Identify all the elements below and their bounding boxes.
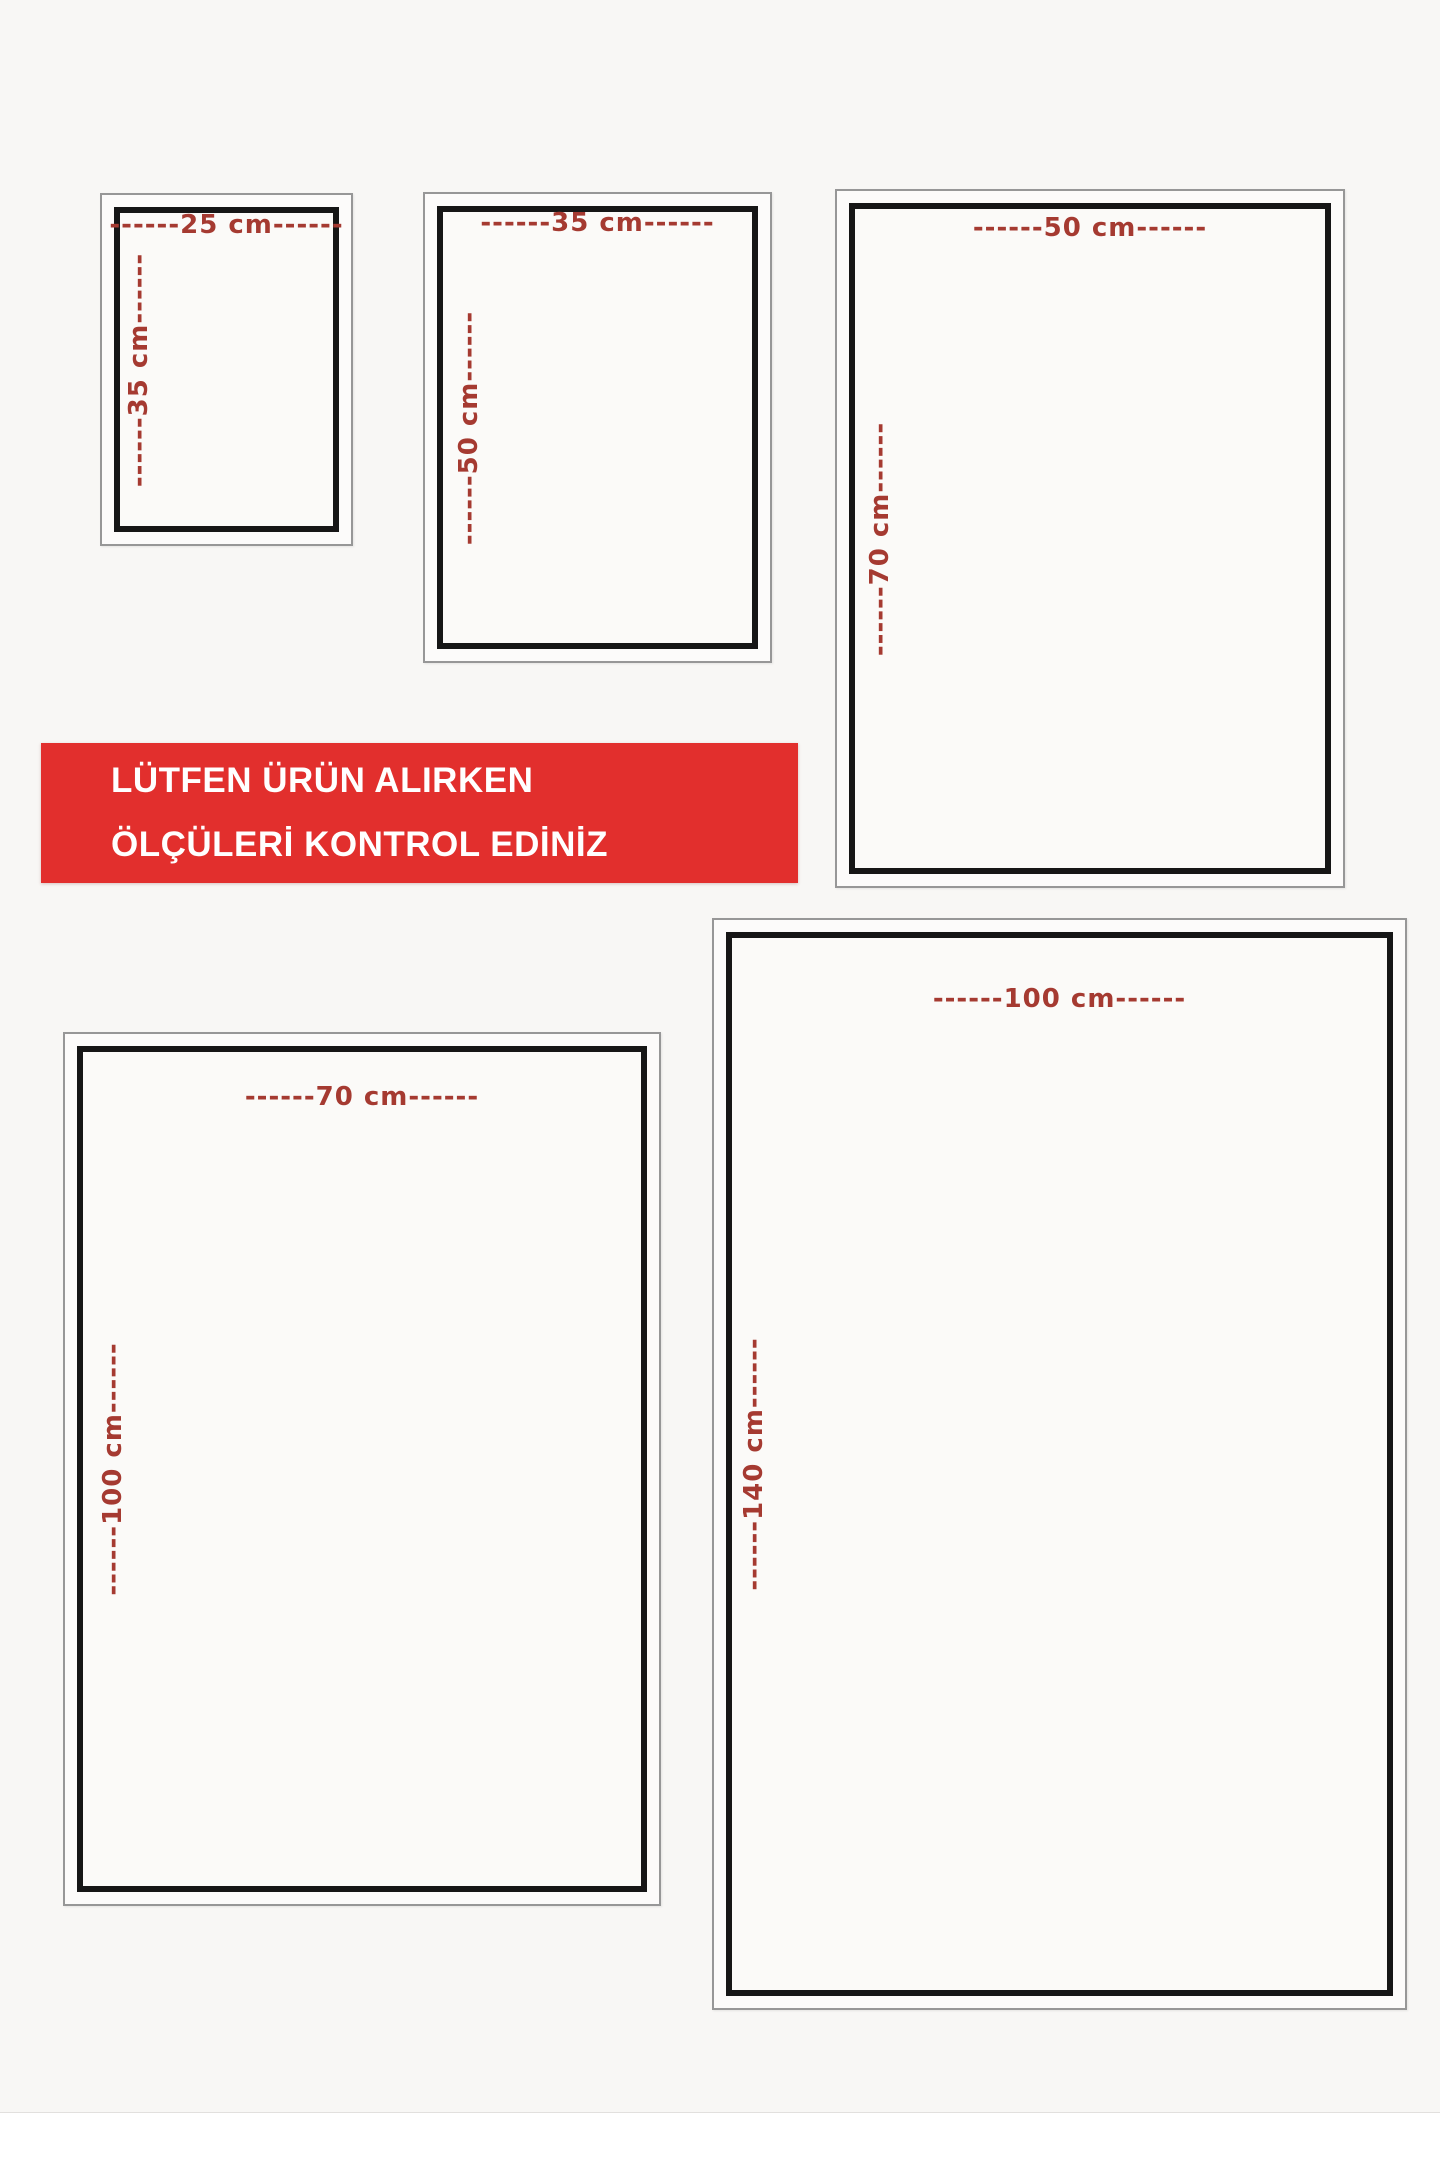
frame-border (77, 1046, 647, 1892)
notice-banner: LÜTFEN ÜRÜN ALIRKEN ÖLÇÜLERİ KONTROL EDİ… (41, 743, 798, 883)
notice-banner-line2: ÖLÇÜLERİ KONTROL EDİNİZ (111, 813, 798, 877)
width-dimension-label: ------50 cm------ (973, 213, 1207, 243)
height-dimension-label: ------35 cm------ (124, 252, 154, 486)
width-dimension-label: ------35 cm------ (480, 208, 714, 238)
bottom-margin-strip (0, 2112, 1440, 2160)
frame-border (437, 206, 758, 649)
size-box-35x50: ------35 cm------ ------50 cm------ (423, 192, 772, 663)
height-dimension-label: ------140 cm------ (739, 1337, 769, 1590)
height-dimension-label: ------70 cm------ (865, 421, 895, 655)
width-dimension-label: ------70 cm------ (245, 1082, 479, 1112)
width-dimension-label: ------100 cm------ (933, 984, 1186, 1014)
width-dimension-label: ------25 cm------ (109, 210, 343, 240)
notice-banner-line1: LÜTFEN ÜRÜN ALIRKEN (111, 749, 798, 813)
frame-border (849, 203, 1331, 874)
size-box-100x140: ------100 cm------ ------140 cm------ (712, 918, 1407, 2010)
size-box-25x35: ------25 cm------ ------35 cm------ (100, 193, 353, 546)
height-dimension-label: ------100 cm------ (98, 1342, 128, 1595)
size-box-50x70: ------50 cm------ ------70 cm------ (835, 189, 1345, 888)
size-box-70x100: ------70 cm------ ------100 cm------ (63, 1032, 661, 1906)
height-dimension-label: ------50 cm------ (454, 310, 484, 544)
frame-border (726, 932, 1393, 1996)
